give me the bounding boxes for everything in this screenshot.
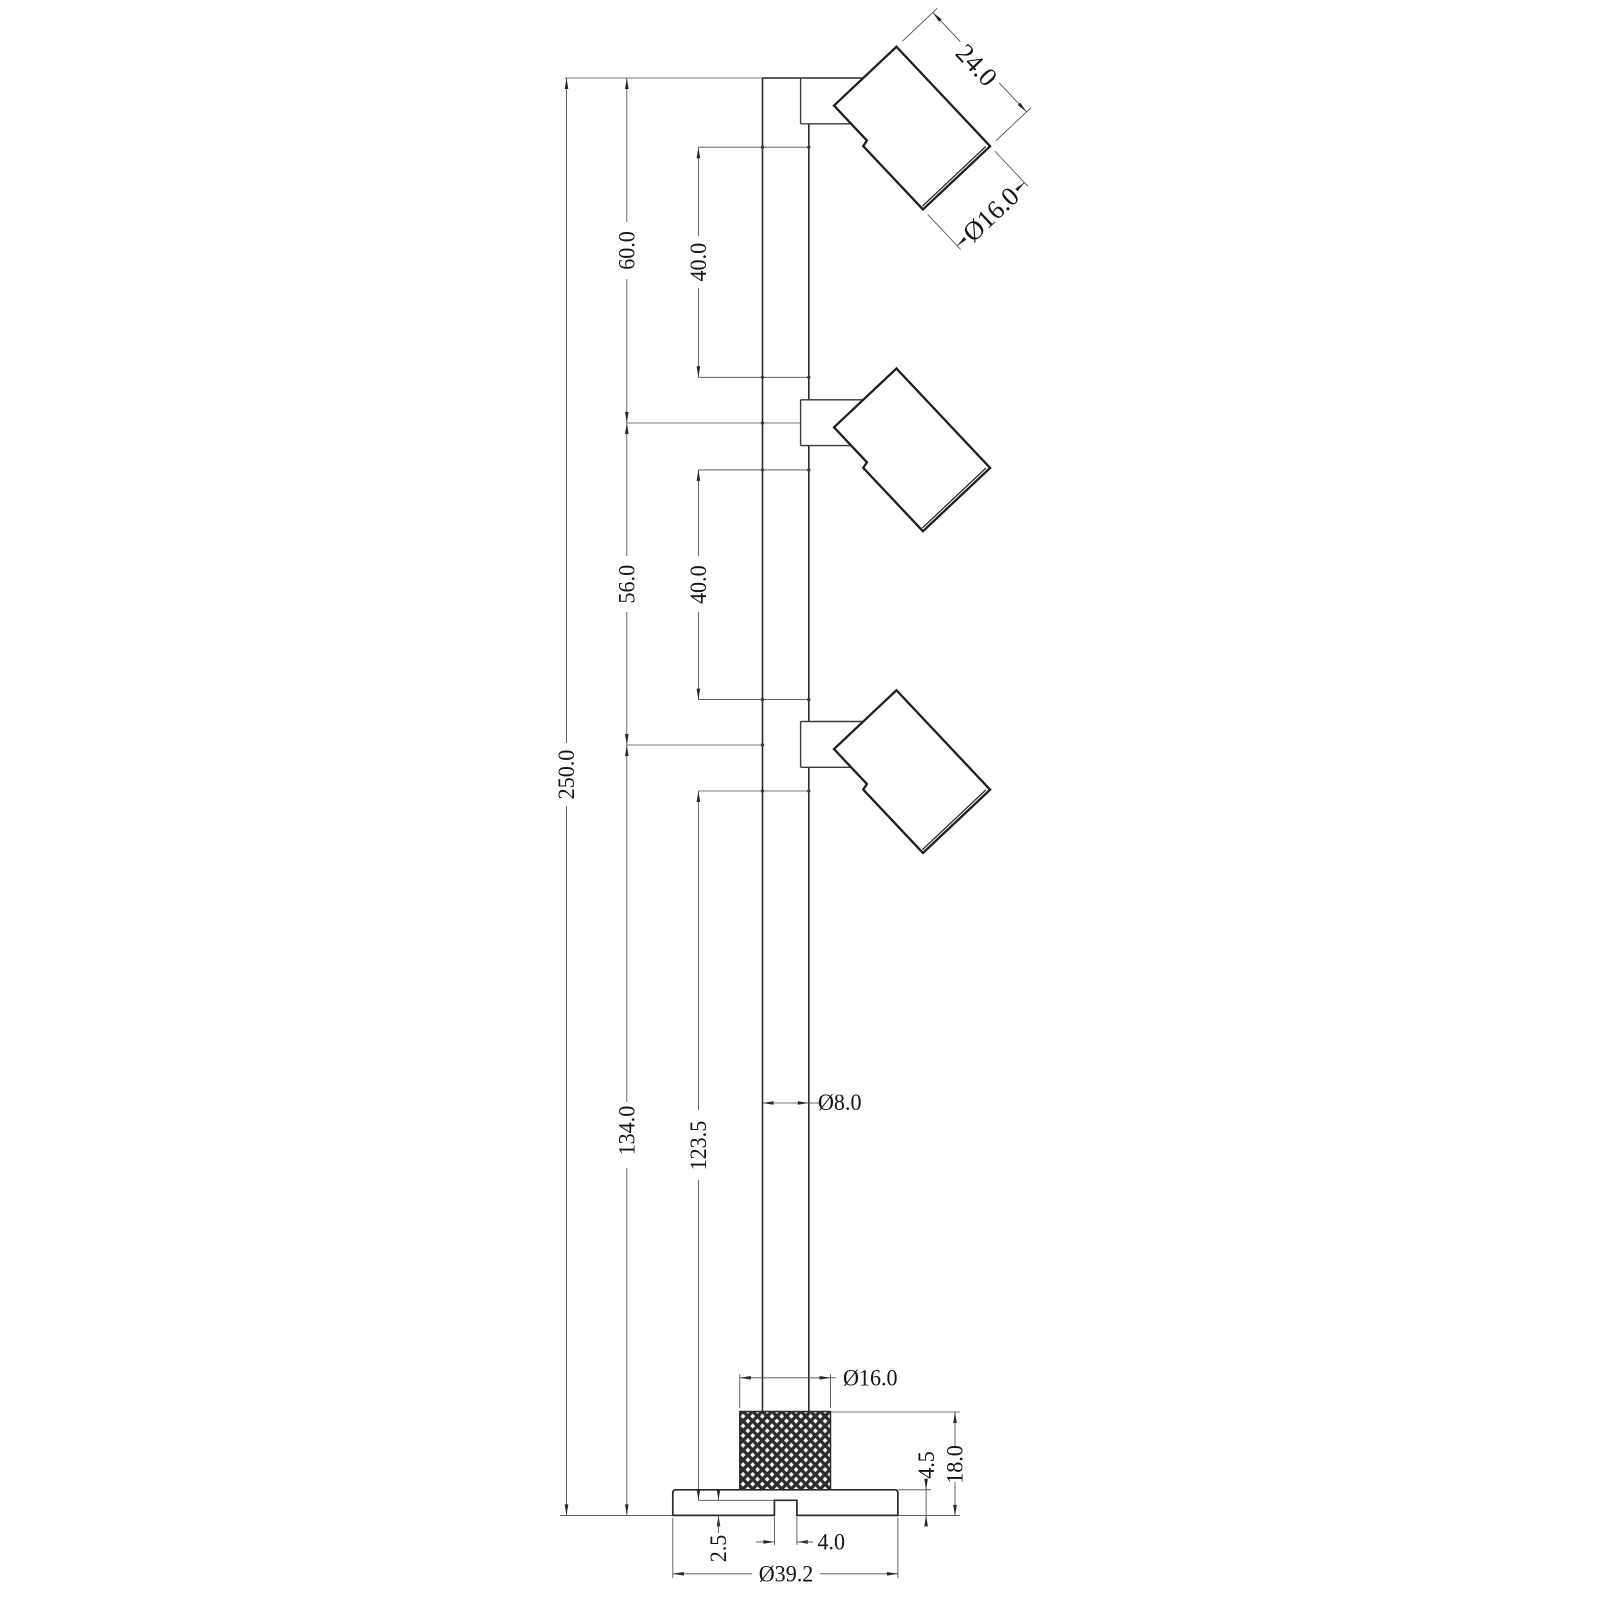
svg-text:18.0: 18.0 [942, 1445, 968, 1484]
svg-text:Ø8.0: Ø8.0 [818, 1090, 862, 1116]
svg-text:250.0: 250.0 [554, 750, 580, 800]
svg-text:4.0: 4.0 [818, 1529, 846, 1555]
svg-text:4.5: 4.5 [913, 1451, 939, 1479]
svg-text:2.5: 2.5 [706, 1535, 732, 1563]
svg-text:60.0: 60.0 [614, 231, 640, 270]
svg-text:40.0: 40.0 [686, 565, 712, 604]
svg-text:Ø39.2: Ø39.2 [759, 1561, 814, 1587]
svg-text:40.0: 40.0 [686, 243, 712, 282]
svg-text:123.5: 123.5 [686, 1121, 712, 1171]
svg-text:56.0: 56.0 [614, 565, 640, 604]
svg-text:Ø16.0: Ø16.0 [843, 1365, 898, 1391]
svg-text:134.0: 134.0 [614, 1106, 640, 1156]
